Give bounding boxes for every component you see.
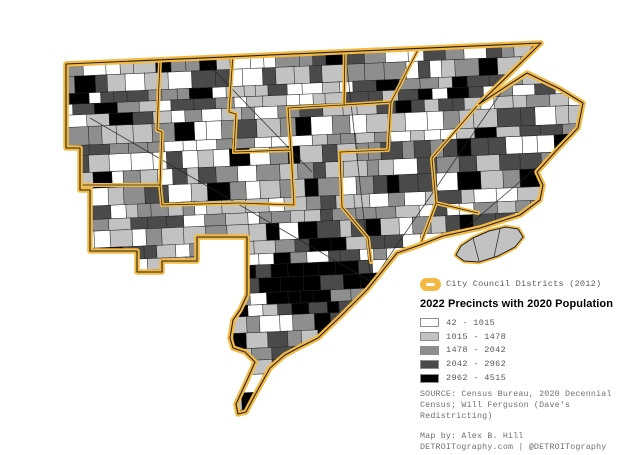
- credit-line: Map by: Alex B. Hill: [420, 432, 634, 443]
- legend-class-row: 1015 - 1478: [420, 330, 634, 344]
- legend-class-row: 1478 - 2042: [420, 344, 634, 358]
- class-label: 1015 - 1478: [446, 332, 506, 342]
- class-swatch: [420, 374, 439, 383]
- source-line: Redistricting): [420, 412, 634, 423]
- district-line-symbol-icon: [420, 278, 441, 291]
- map-credit: Map by: Alex B. Hill DETROITography.com …: [420, 432, 634, 454]
- class-swatch: [420, 332, 439, 341]
- class-swatch: [420, 318, 439, 327]
- class-label: 2042 - 2962: [446, 359, 506, 369]
- class-label: 2962 - 4515: [446, 373, 506, 383]
- legend-class-row: 2962 - 4515: [420, 371, 634, 385]
- legend-title: 2022 Precincts with 2020 Population: [420, 298, 634, 310]
- source-note: SOURCE: Census Bureau, 2020 Decennial Ce…: [420, 390, 634, 422]
- credit-line: DETROITography.com | @DETROITography: [420, 443, 634, 454]
- legend: City Council Districts (2012) 2022 Preci…: [420, 276, 634, 454]
- legend-districts-row: City Council Districts (2012): [420, 276, 634, 292]
- class-label: 1478 - 2042: [446, 345, 506, 355]
- class-label: 42 - 1015: [446, 318, 495, 328]
- districts-label: City Council Districts (2012): [446, 279, 601, 289]
- class-swatch: [420, 346, 439, 355]
- legend-class-row: 42 - 1015: [420, 316, 634, 330]
- class-swatch: [420, 360, 439, 369]
- source-line: Census; Will Ferguson (Dave's: [420, 401, 634, 412]
- source-line: SOURCE: Census Bureau, 2020 Decennial: [420, 390, 634, 401]
- legend-class-row: 2042 - 2962: [420, 357, 634, 371]
